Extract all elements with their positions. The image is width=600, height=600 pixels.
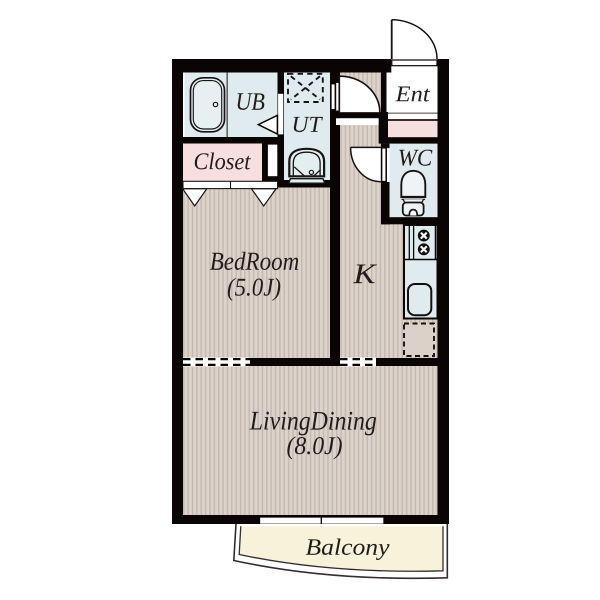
svg-text:UB: UB <box>235 89 265 116</box>
svg-text:(5.0J): (5.0J) <box>227 272 281 301</box>
svg-text:Balcony: Balcony <box>305 535 390 561</box>
svg-text:K: K <box>352 259 377 290</box>
svg-text:(8.0J): (8.0J) <box>286 431 342 460</box>
svg-text:UT: UT <box>291 112 323 137</box>
svg-text:BedRoom: BedRoom <box>210 247 300 276</box>
svg-text:WC: WC <box>398 145 433 171</box>
svg-text:Closet: Closet <box>193 149 251 175</box>
svg-text:Ent: Ent <box>395 81 431 106</box>
